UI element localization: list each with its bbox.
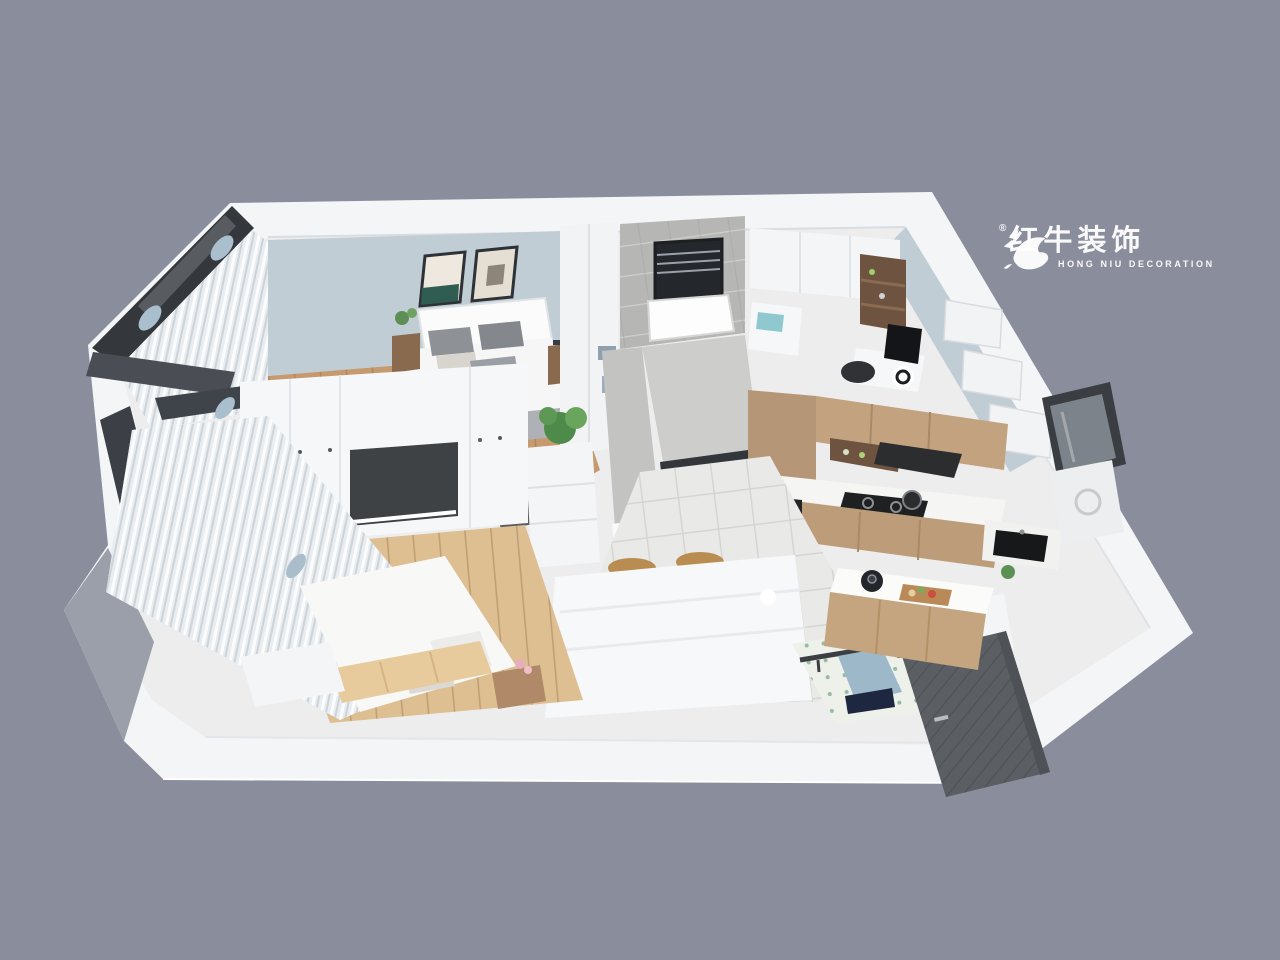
- sink-faucet: [1020, 530, 1025, 535]
- monitor: [884, 324, 922, 364]
- pink-flowers-2: [524, 666, 532, 674]
- handle-4: [498, 436, 502, 440]
- bed-pillow-gray-1: [428, 327, 474, 356]
- potted-plant-3: [539, 407, 557, 425]
- drawer-unit: [525, 442, 600, 568]
- brand-row: ® 红牛装饰: [1002, 224, 1215, 257]
- food-bread: [909, 590, 916, 597]
- plant-left: [395, 311, 409, 325]
- cooking-pot: [903, 491, 921, 509]
- picture-2-art: [486, 264, 505, 286]
- pot-lid: [868, 575, 876, 583]
- bed-pillow-gray-2: [478, 321, 524, 350]
- apartment-3d-render: [0, 0, 1280, 960]
- daybed-cushion: [756, 312, 784, 332]
- handle-2: [328, 448, 332, 452]
- food-greens: [918, 587, 925, 594]
- open-shelf: [860, 254, 906, 332]
- nightstand-left: [392, 333, 420, 373]
- handle-3: [478, 438, 482, 442]
- bull-horn-1: [1009, 229, 1019, 240]
- coat-hook-1: [818, 660, 819, 672]
- bull-horn-2: [1004, 240, 1014, 249]
- white-appliance: [1050, 460, 1124, 544]
- shelf-bottle-1: [869, 269, 875, 275]
- dining-table: [545, 555, 812, 718]
- bull-body: [1013, 237, 1048, 269]
- jar-2: [859, 452, 865, 458]
- bull-tail: [1004, 264, 1012, 269]
- dome-device: [892, 366, 914, 388]
- shelf-bottle-2: [879, 293, 885, 299]
- bull-logo-icon: [1002, 226, 1052, 272]
- office-chair: [841, 361, 875, 383]
- potted-plant-2: [565, 407, 587, 429]
- pink-flowers: [515, 659, 525, 669]
- brand-watermark: ® 红牛装饰 HONG NIU DECORATION: [1002, 224, 1215, 269]
- food-tomato: [928, 590, 936, 598]
- floor-light: [760, 589, 776, 605]
- brand-name-en: HONG NIU DECORATION: [1058, 259, 1215, 269]
- plant-left-2: [407, 308, 417, 318]
- jar-1: [843, 449, 849, 455]
- entry-plant: [1001, 565, 1015, 579]
